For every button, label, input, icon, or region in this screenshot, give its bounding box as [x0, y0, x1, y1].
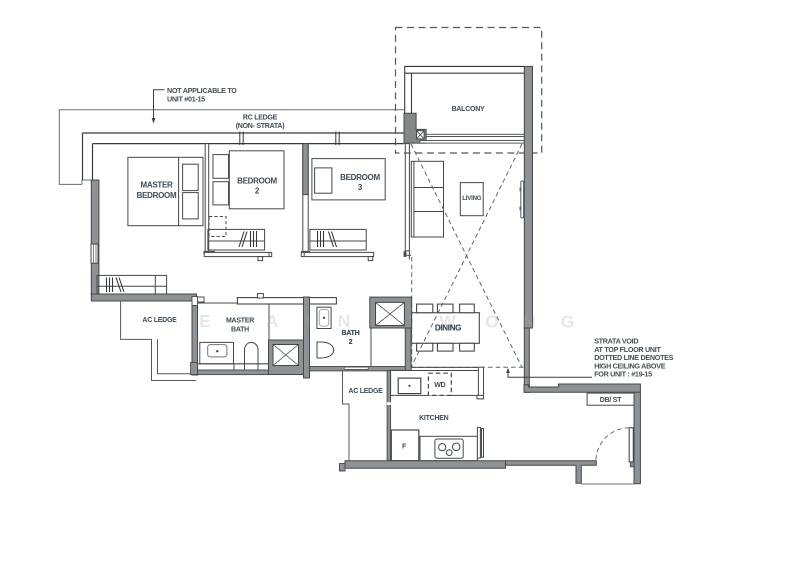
- svg-text:2: 2: [349, 339, 353, 346]
- svg-text:N: N: [338, 311, 351, 331]
- svg-text:RC LEDGE: RC LEDGE: [243, 115, 278, 122]
- svg-text:BEDROOM: BEDROOM: [340, 173, 380, 182]
- svg-text:(NON- STRATA): (NON- STRATA): [236, 123, 285, 130]
- svg-text:A: A: [266, 311, 279, 331]
- svg-text:AC LEDGE: AC LEDGE: [142, 317, 177, 324]
- svg-text:N: N: [523, 312, 536, 332]
- svg-text:BATH: BATH: [342, 330, 360, 337]
- svg-text:BATH: BATH: [231, 327, 249, 334]
- svg-text:BEDROOM: BEDROOM: [237, 177, 277, 186]
- svg-text:O: O: [485, 312, 499, 332]
- svg-text:DINING: DINING: [435, 324, 461, 333]
- svg-text:I: I: [306, 311, 311, 331]
- svg-text:LIVING: LIVING: [462, 195, 482, 202]
- svg-text:MASTER: MASTER: [141, 181, 174, 190]
- svg-text:WD: WD: [434, 382, 445, 389]
- svg-text:KITCHEN: KITCHEN: [419, 415, 449, 422]
- svg-text:AC LEDGE: AC LEDGE: [348, 388, 383, 395]
- svg-text:BEDROOM: BEDROOM: [137, 191, 177, 200]
- svg-text:UNIT #01-15: UNIT #01-15: [167, 95, 205, 104]
- svg-text:DB/ ST: DB/ ST: [600, 397, 622, 404]
- svg-text:G: G: [561, 312, 575, 332]
- svg-text:BALCONY: BALCONY: [452, 106, 485, 113]
- svg-text:MASTER: MASTER: [226, 318, 254, 325]
- svg-text:E: E: [199, 311, 211, 331]
